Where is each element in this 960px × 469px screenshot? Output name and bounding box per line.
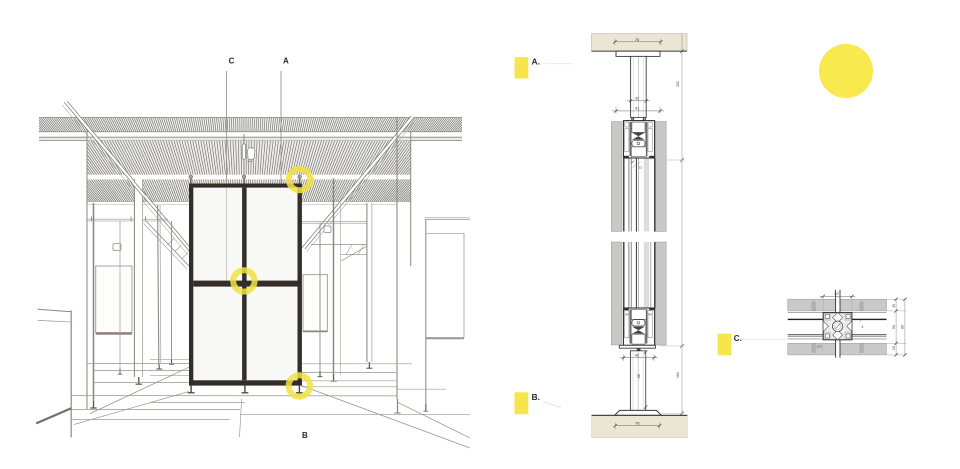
svg-text:151: 151 bbox=[676, 81, 680, 87]
svg-text:32: 32 bbox=[635, 96, 640, 101]
svg-text:35: 35 bbox=[636, 373, 641, 378]
svg-text:12: 12 bbox=[639, 166, 643, 170]
svg-text:50: 50 bbox=[892, 325, 896, 329]
svg-text:4: 4 bbox=[862, 325, 864, 329]
svg-text:76: 76 bbox=[635, 421, 640, 426]
svg-text:76: 76 bbox=[635, 37, 640, 42]
svg-text:181: 181 bbox=[676, 372, 680, 378]
svg-text:15: 15 bbox=[892, 346, 896, 350]
svg-text:C: C bbox=[229, 57, 235, 66]
svg-text:15: 15 bbox=[892, 304, 896, 308]
svg-text:A: A bbox=[283, 57, 289, 66]
svg-text:42: 42 bbox=[635, 353, 640, 358]
svg-text:B: B bbox=[302, 431, 308, 440]
svg-text:A.: A. bbox=[532, 56, 541, 66]
svg-text:C.: C. bbox=[734, 334, 742, 343]
svg-text:(20): (20) bbox=[817, 344, 823, 348]
svg-text:41: 41 bbox=[635, 106, 640, 111]
svg-text:47: 47 bbox=[834, 291, 839, 296]
svg-text:80: 80 bbox=[901, 325, 905, 329]
svg-text:B.: B. bbox=[532, 392, 541, 402]
